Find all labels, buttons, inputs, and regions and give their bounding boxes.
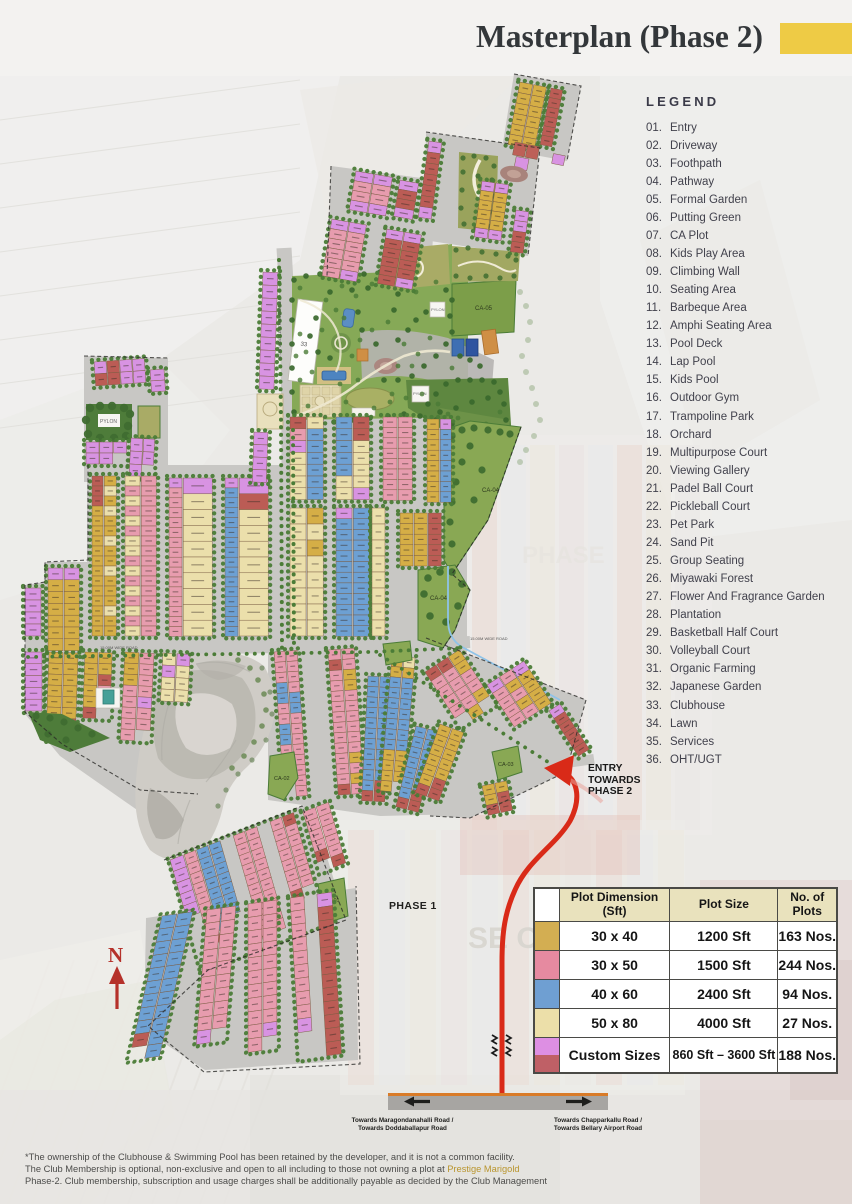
svg-text:PYLON: PYLON [100,419,117,425]
svg-text:N: N [108,943,123,967]
svg-text:CA-04: CA-04 [430,596,448,602]
svg-text:15.00M WIDE ROAD: 15.00M WIDE ROAD [470,636,508,641]
svg-text:CA-03: CA-03 [498,762,514,768]
svg-text:CA-05: CA-05 [475,306,493,312]
svg-text:15.0M WIDE CENTRAL AVENUE: 15.0M WIDE CENTRAL AVENUE [277,300,282,360]
svg-text:CA-04: CA-04 [482,488,500,494]
svg-text:CA-02: CA-02 [274,776,290,782]
svg-text:15.00M WIDE ROAD: 15.00M WIDE ROAD [100,645,138,650]
svg-text:PHASE: PHASE [522,542,605,569]
svg-text:PYLON: PYLON [431,307,445,312]
